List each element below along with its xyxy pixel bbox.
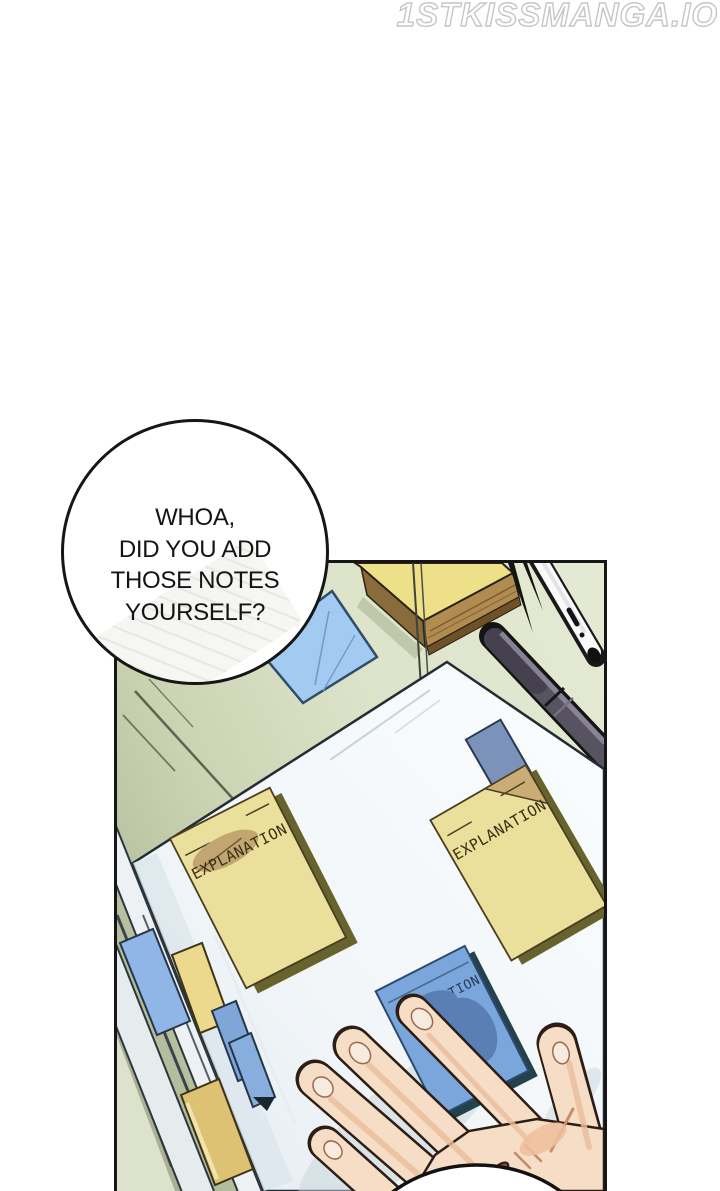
manga-page: 1stKissManga.io (0, 0, 720, 1191)
speech-text: WHOA, DID YOU ADD THOSE NOTES YOURSELF? (111, 502, 280, 628)
speech-bubble: WHOA, DID YOU ADD THOSE NOTES YOURSELF? (61, 419, 329, 685)
watermark: 1stKissManga.io (397, 0, 718, 34)
